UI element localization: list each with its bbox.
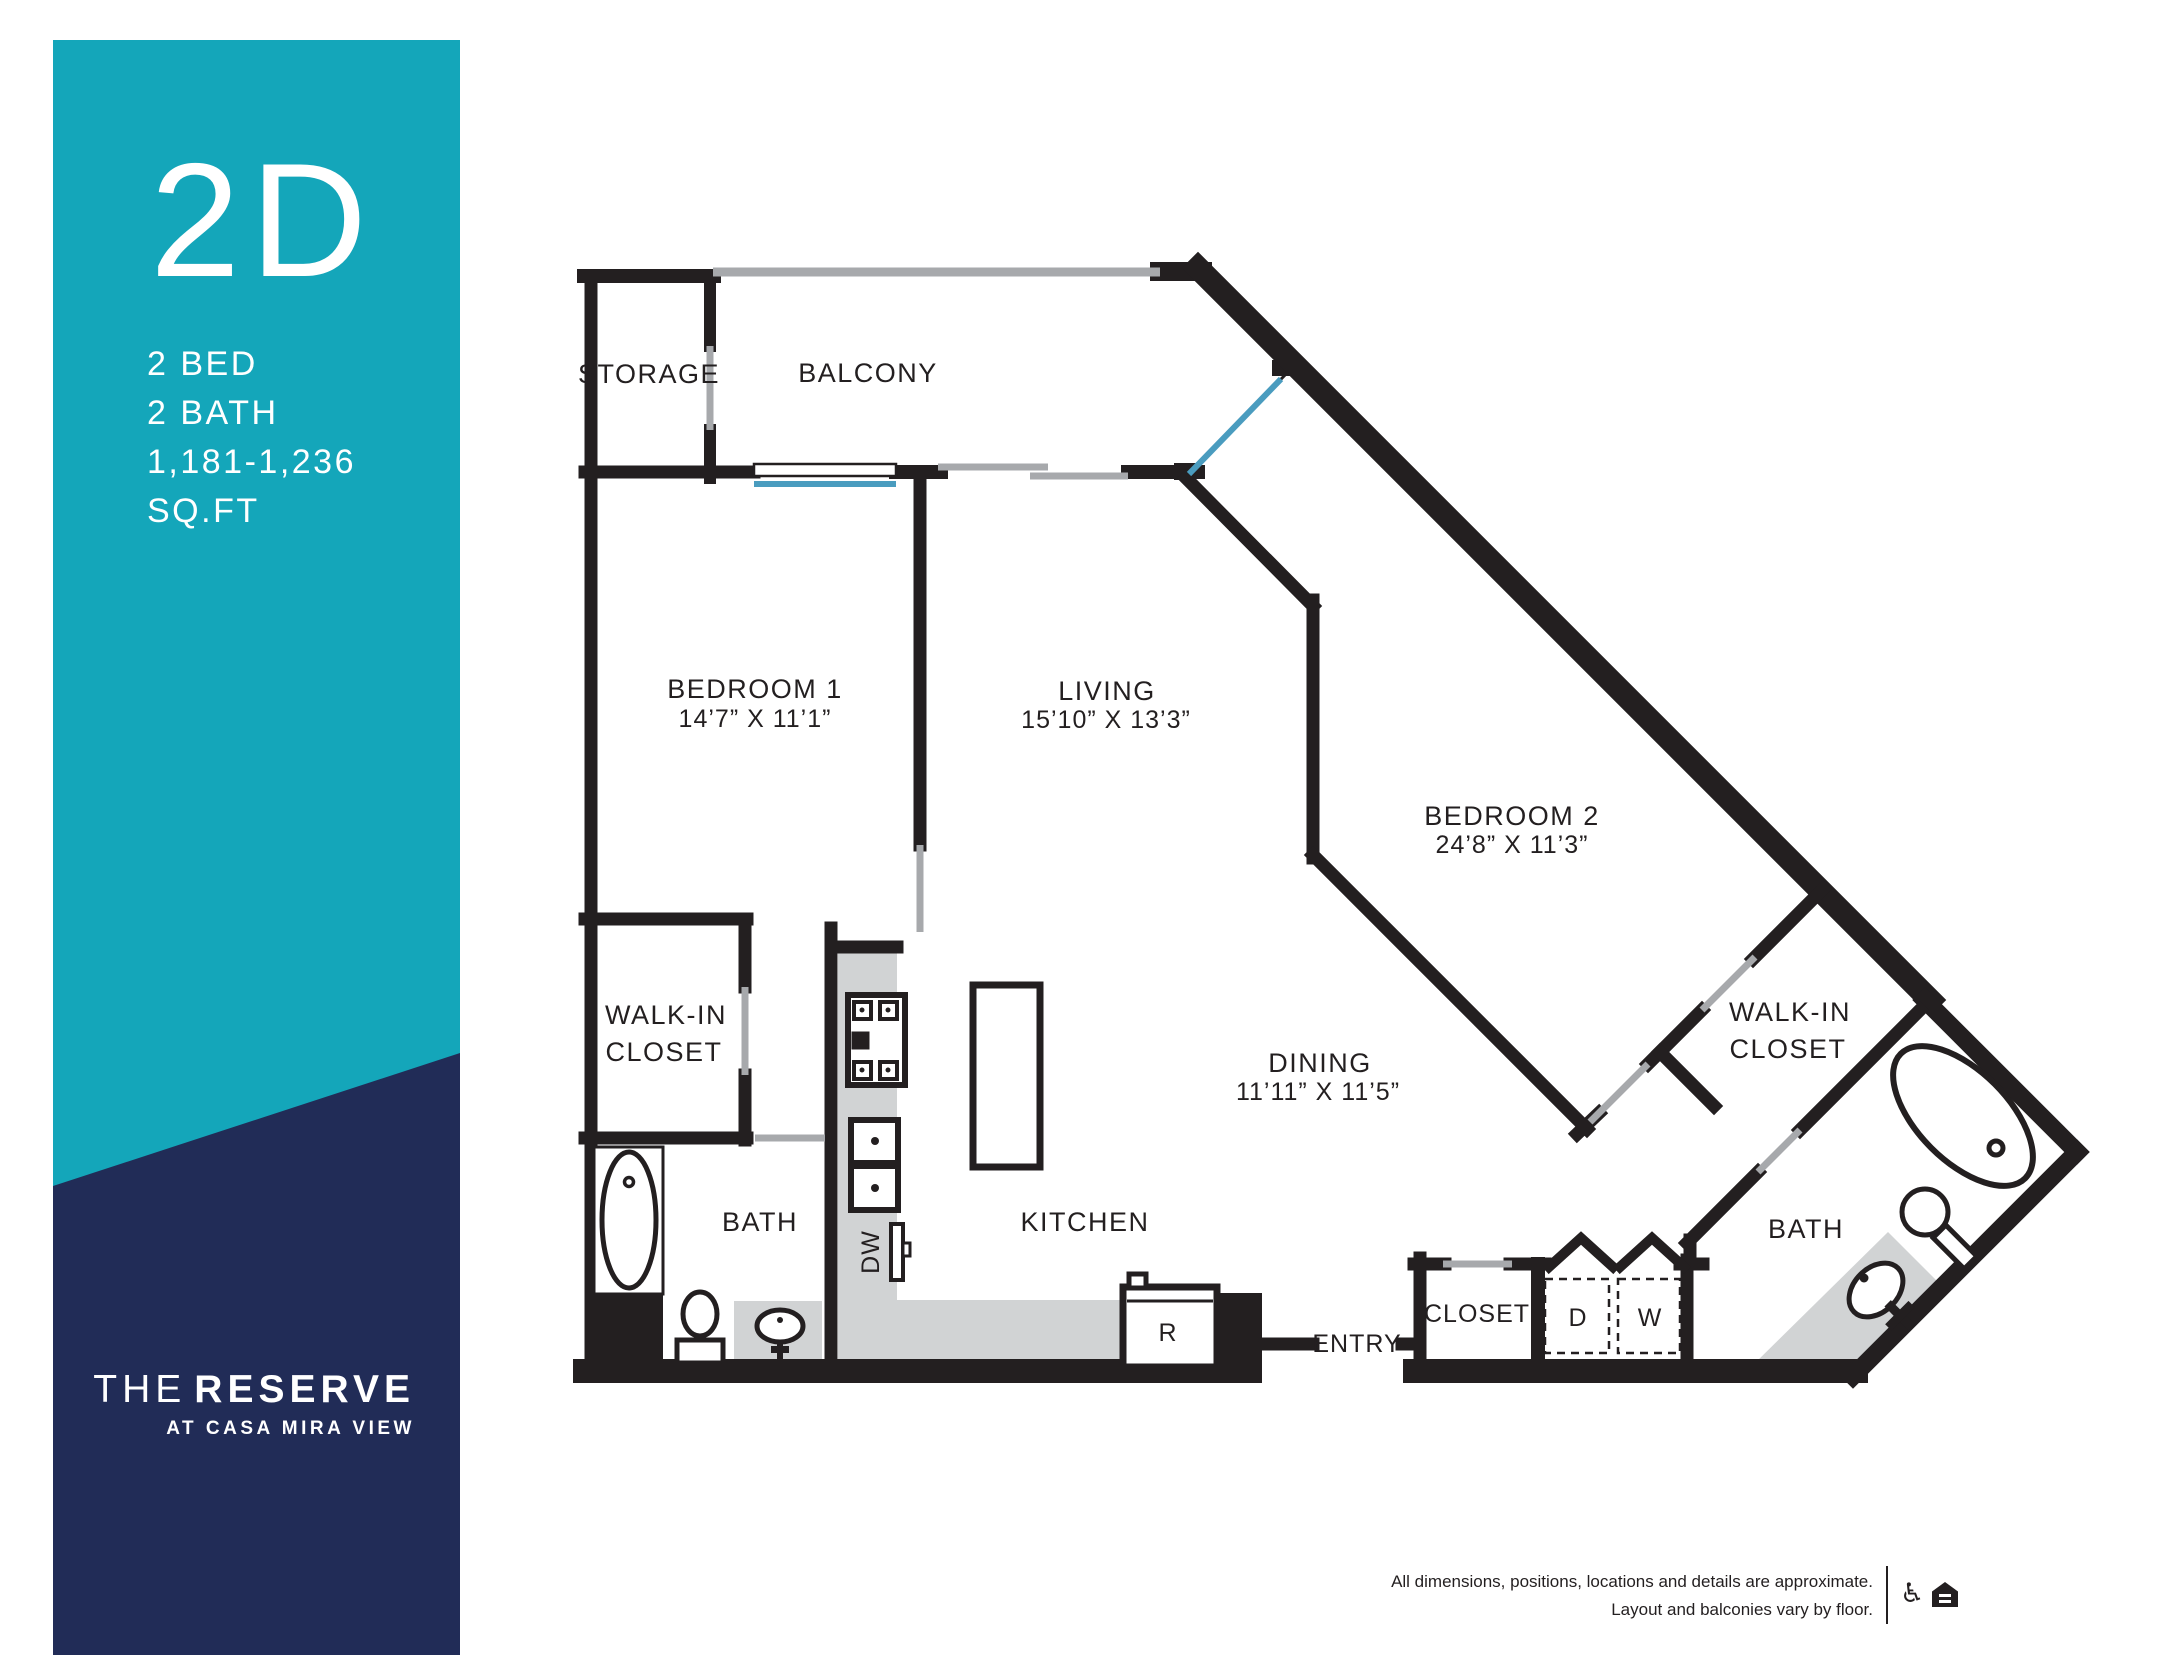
label-walkin2-line2: CLOSET — [1729, 1034, 1846, 1064]
label-bedroom1: BEDROOM 1 — [667, 674, 843, 704]
label-walkin1-line2: CLOSET — [605, 1037, 722, 1067]
disclaimer-line2: Layout and balconies vary by floor. — [1173, 1596, 1873, 1624]
label-bedroom2: BEDROOM 2 — [1424, 801, 1600, 831]
label-closet: CLOSET — [1424, 1300, 1530, 1328]
label-balcony: BALCONY — [798, 358, 938, 388]
label-walkin2-line1: WALK-IN — [1729, 997, 1851, 1027]
equal-housing-icon — [1930, 1580, 1960, 1610]
disclaimer: All dimensions, positions, locations and… — [1173, 1568, 1873, 1624]
label-entry: ENTRY — [1312, 1330, 1401, 1358]
kitchen-sink-cabinets — [851, 1120, 898, 1210]
floorplan-page: 2D 2 BED 2 BATH 1,181-1,236 SQ.FT THERES… — [0, 0, 2163, 1663]
label-bath1: BATH — [722, 1207, 798, 1237]
bath1-toilet — [677, 1292, 723, 1363]
label-dishwasher: DW — [857, 1230, 885, 1274]
label-storage: STORAGE — [578, 359, 720, 389]
label-dryer: D — [1568, 1304, 1587, 1332]
stove — [848, 995, 905, 1085]
kitchen-island — [973, 985, 1040, 1167]
label-walkin1-line1: WALK-IN — [605, 1000, 727, 1030]
disclaimer-line1: All dimensions, positions, locations and… — [1173, 1568, 1873, 1596]
wall-blocks — [585, 262, 1292, 1383]
dims-living: 15’10” X 13’3” — [1021, 706, 1191, 734]
label-bath2: BATH — [1768, 1214, 1844, 1244]
dims-bedroom2: 24’8” X 11’3” — [1436, 831, 1589, 859]
floorplan-drawing: STORAGE BALCONY BEDROOM 1 14’7” X 11’1” … — [0, 0, 2163, 1663]
label-refrigerator: R — [1158, 1319, 1177, 1347]
bath2-toilet — [1902, 1189, 1977, 1269]
label-living: LIVING — [1058, 676, 1156, 706]
label-dining: DINING — [1268, 1048, 1372, 1078]
dishwasher — [891, 1224, 910, 1280]
label-kitchen: KITCHEN — [1020, 1207, 1149, 1237]
footer-divider — [1886, 1566, 1888, 1624]
dims-dining: 11’11” X 11’5” — [1236, 1078, 1400, 1106]
label-washer: W — [1638, 1304, 1663, 1332]
bath1-tub — [594, 1147, 663, 1294]
walls — [584, 268, 2077, 1376]
dims-bedroom1: 14’7” X 11’1” — [679, 705, 832, 733]
wheelchair-icon: ♿ — [1900, 1580, 1924, 1607]
footer-icons: ♿ — [1900, 1578, 1960, 1618]
